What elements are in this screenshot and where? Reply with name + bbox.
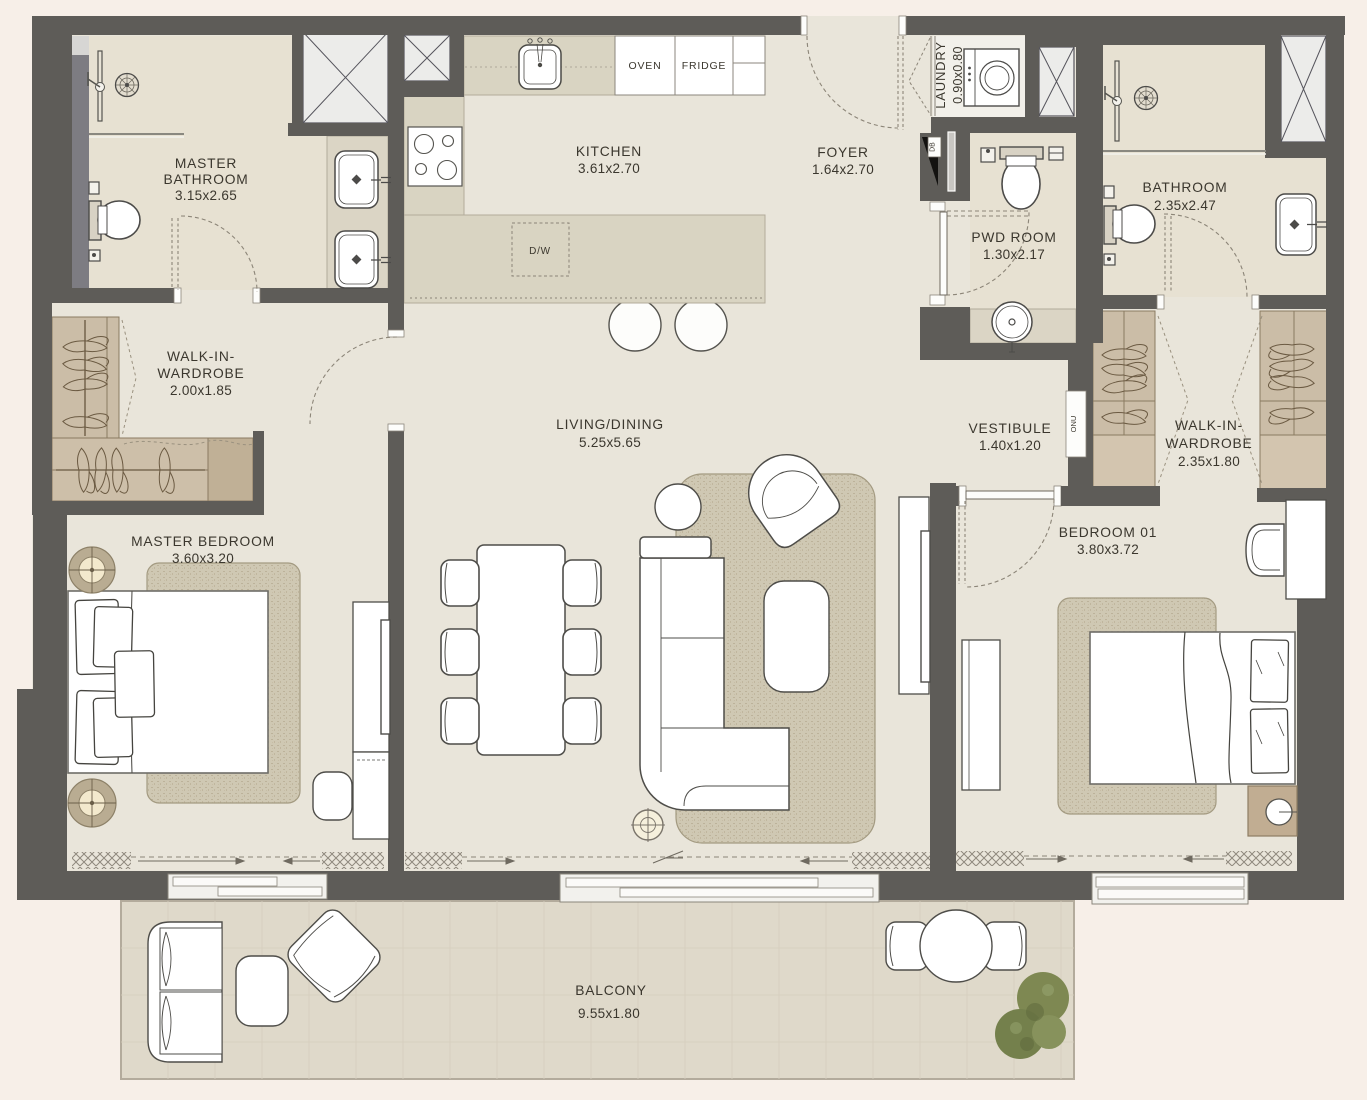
svg-text:3.15x2.65: 3.15x2.65 [175,188,237,203]
svg-text:WARDROBE: WARDROBE [1165,436,1252,451]
svg-text:MASTER: MASTER [175,156,237,171]
svg-text:BALCONY: BALCONY [575,983,647,998]
svg-text:FRIDGE: FRIDGE [682,60,726,72]
svg-text:2.35x1.80: 2.35x1.80 [1178,454,1240,469]
svg-text:1.30x2.17: 1.30x2.17 [983,247,1045,262]
svg-text:3.60x3.20: 3.60x3.20 [172,551,234,566]
svg-text:1.40x1.20: 1.40x1.20 [979,438,1041,453]
svg-text:0.90x0.80: 0.90x0.80 [951,46,965,104]
svg-text:LIVING/DINING: LIVING/DINING [556,417,664,432]
svg-text:2.00x1.85: 2.00x1.85 [170,383,232,398]
svg-text:2.35x2.47: 2.35x2.47 [1154,198,1216,213]
svg-text:FOYER: FOYER [817,145,869,160]
svg-text:BATHROOM: BATHROOM [163,172,248,187]
svg-text:WALK-IN-: WALK-IN- [167,349,235,364]
svg-text:WARDROBE: WARDROBE [157,366,244,381]
svg-text:MASTER BEDROOM: MASTER BEDROOM [131,534,275,549]
svg-text:WALK-IN-: WALK-IN- [1175,418,1243,433]
svg-text:3.80x3.72: 3.80x3.72 [1077,542,1139,557]
svg-text:OVEN: OVEN [629,60,662,72]
svg-text:LAUNDRY: LAUNDRY [933,41,948,109]
svg-text:5.25x5.65: 5.25x5.65 [579,435,641,450]
svg-text:D/W: D/W [529,246,551,257]
svg-text:1.64x2.70: 1.64x2.70 [812,162,874,177]
svg-text:3.61x2.70: 3.61x2.70 [578,161,640,176]
svg-text:PWD ROOM: PWD ROOM [971,230,1056,245]
svg-text:KITCHEN: KITCHEN [576,144,642,159]
svg-text:9.55x1.80: 9.55x1.80 [578,1006,640,1021]
svg-text:VESTIBULE: VESTIBULE [968,421,1051,436]
svg-text:DB: DB [930,142,937,152]
svg-text:BEDROOM 01: BEDROOM 01 [1059,525,1157,540]
svg-text:ONU: ONU [1069,416,1078,433]
svg-text:BATHROOM: BATHROOM [1142,180,1227,195]
